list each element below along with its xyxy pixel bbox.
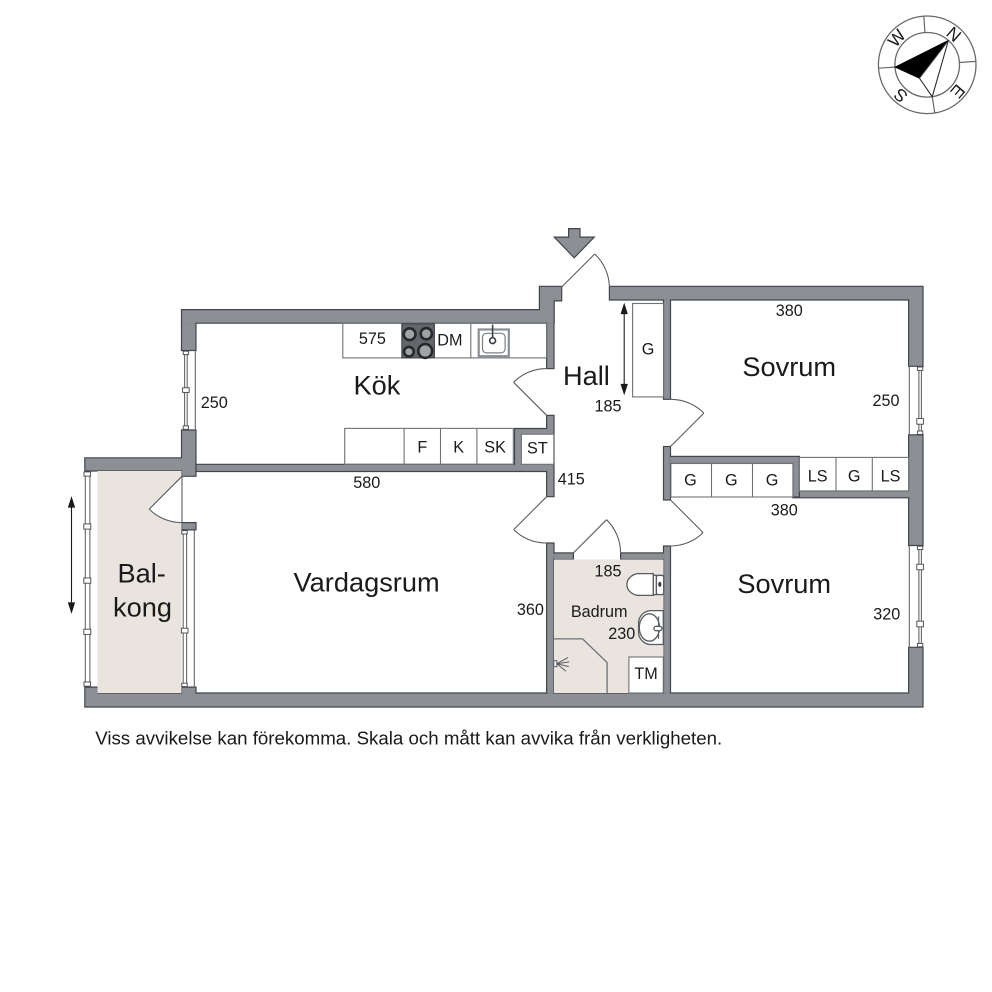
svg-text:G: G [848, 468, 861, 486]
svg-text:Bal-: Bal- [118, 558, 166, 589]
svg-text:SK: SK [484, 439, 506, 457]
svg-text:G: G [684, 471, 697, 489]
svg-text:Kök: Kök [353, 370, 400, 401]
svg-text:Sovrum: Sovrum [737, 568, 831, 599]
svg-text:250: 250 [201, 394, 228, 412]
svg-text:DM: DM [437, 332, 462, 350]
svg-text:185: 185 [594, 397, 621, 415]
svg-text:F: F [417, 439, 427, 457]
svg-text:185: 185 [594, 562, 621, 580]
svg-text:Hall: Hall [563, 360, 610, 391]
svg-text:LS: LS [881, 468, 901, 486]
svg-text:TM: TM [634, 665, 657, 683]
svg-text:320: 320 [873, 606, 900, 624]
svg-text:G: G [642, 340, 655, 358]
svg-text:575: 575 [359, 330, 386, 348]
svg-text:kong: kong [113, 592, 172, 623]
svg-text:Badrum: Badrum [571, 603, 628, 621]
svg-text:LS: LS [808, 468, 828, 486]
svg-text:380: 380 [776, 302, 803, 320]
svg-text:Sovrum: Sovrum [742, 351, 836, 382]
svg-text:415: 415 [558, 470, 585, 488]
svg-text:Viss avvikelse kan förekomma.: Viss avvikelse kan förekomma. Skala och … [95, 727, 722, 748]
svg-text:G: G [725, 471, 738, 489]
svg-text:250: 250 [872, 392, 899, 410]
svg-text:360: 360 [517, 601, 544, 619]
svg-text:Vardagsrum: Vardagsrum [294, 567, 440, 598]
svg-text:380: 380 [771, 502, 798, 520]
svg-text:K: K [453, 439, 464, 457]
svg-text:230: 230 [608, 625, 635, 643]
svg-text:ST: ST [527, 440, 548, 458]
svg-text:G: G [766, 471, 779, 489]
svg-text:580: 580 [353, 474, 380, 492]
